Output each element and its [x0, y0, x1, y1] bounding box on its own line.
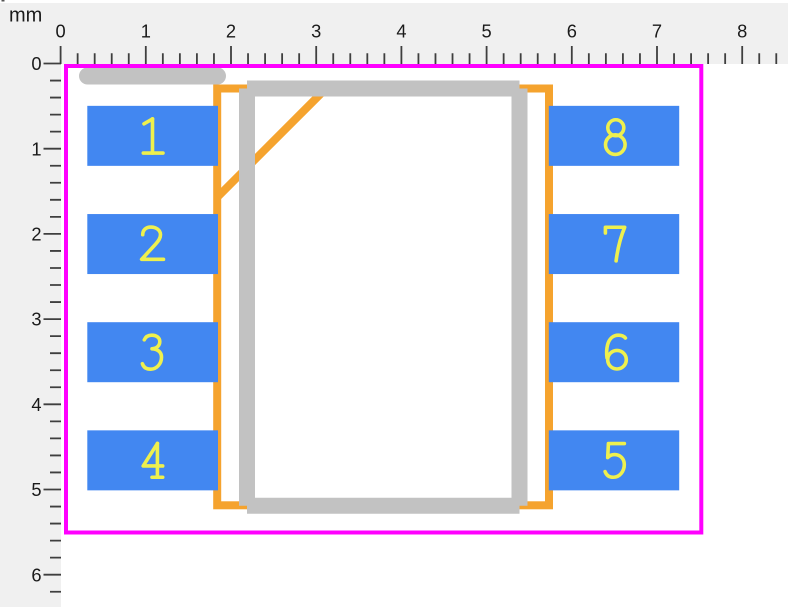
svg-text:1: 1: [141, 21, 151, 42]
svg-text:2: 2: [31, 224, 41, 245]
svg-text:6: 6: [31, 564, 41, 585]
svg-text:6: 6: [567, 21, 577, 42]
svg-text:0: 0: [56, 21, 66, 42]
svg-text:5: 5: [482, 21, 492, 42]
svg-text:3: 3: [31, 309, 41, 330]
svg-text:2: 2: [226, 21, 236, 42]
svg-text:3: 3: [311, 21, 321, 42]
svg-text:4: 4: [396, 21, 406, 42]
svg-text:7: 7: [652, 21, 662, 42]
svg-text:0: 0: [31, 53, 41, 74]
svg-text:8: 8: [737, 21, 747, 42]
svg-text:mm: mm: [9, 5, 42, 27]
svg-text:1: 1: [31, 138, 41, 159]
svg-text:5: 5: [31, 479, 41, 500]
svg-text:4: 4: [31, 394, 41, 415]
